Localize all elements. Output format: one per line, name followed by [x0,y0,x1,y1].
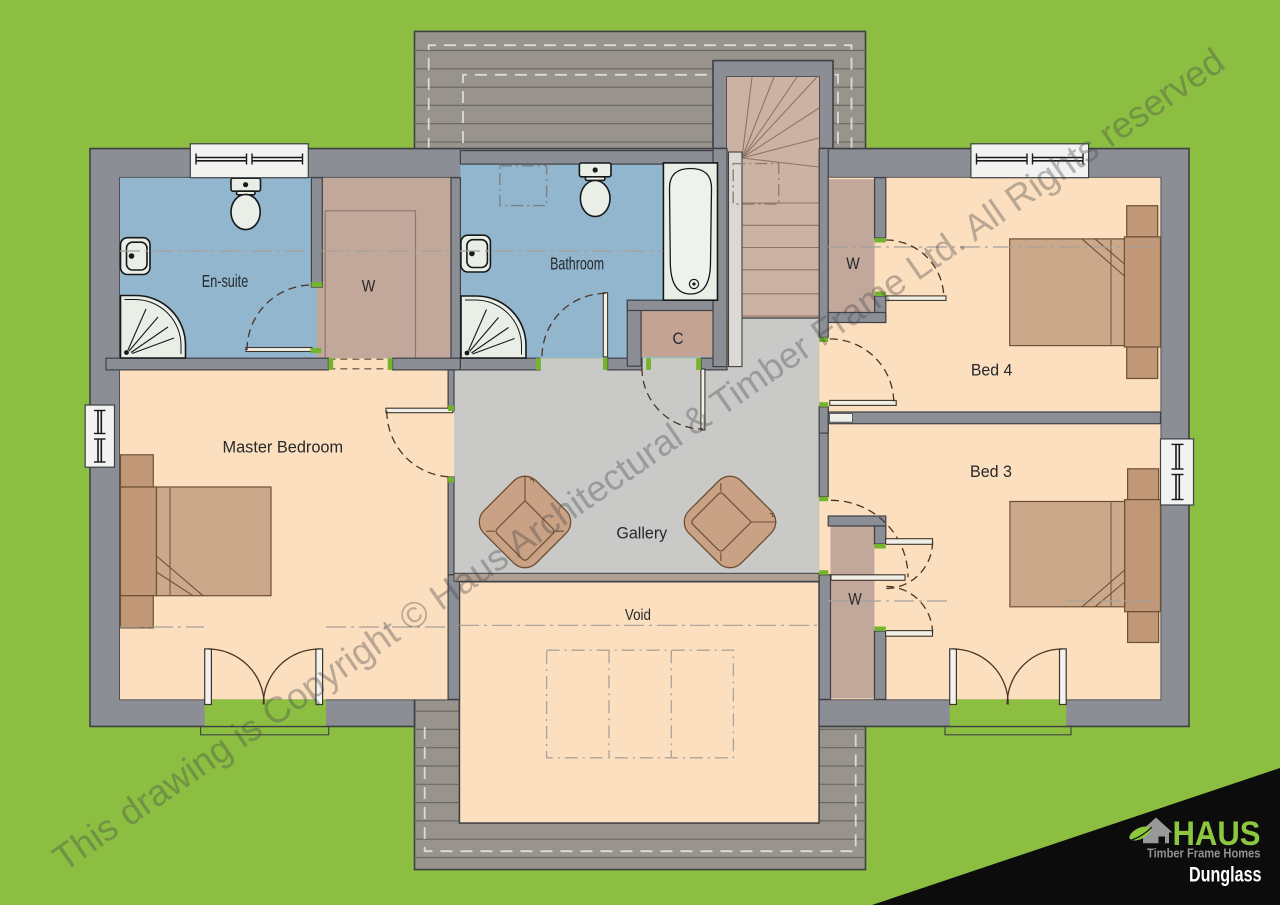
svg-text:Bed 3: Bed 3 [970,463,1012,481]
svg-text:Dunglass: Dunglass [1189,863,1262,887]
svg-text:En-suite: En-suite [202,271,249,291]
svg-text:Master Bedroom: Master Bedroom [223,439,344,457]
svg-text:W: W [848,590,862,609]
svg-text:C: C [673,329,684,348]
svg-text:Void: Void [625,607,651,624]
svg-text:W: W [846,254,860,273]
svg-text:W: W [362,277,376,296]
svg-text:Bed 4: Bed 4 [971,362,1013,380]
svg-text:Timber Frame Homes: Timber Frame Homes [1147,847,1261,861]
svg-text:Bathroom: Bathroom [550,254,604,274]
svg-text:Gallery: Gallery [616,524,667,543]
